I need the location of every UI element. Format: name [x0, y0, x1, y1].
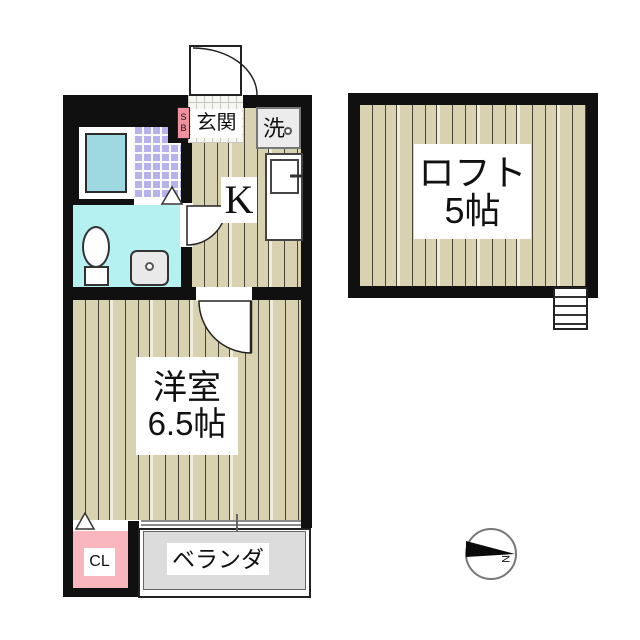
veranda-label-box: ベランダ — [167, 543, 269, 575]
kitchen-label: K — [225, 179, 254, 221]
entrance-door — [190, 46, 241, 95]
main-room-label-box: 洋室 6.5帖 — [136, 357, 238, 455]
compass-circle — [466, 529, 516, 579]
washer-door-icon — [284, 127, 292, 135]
shoe-box: SB — [177, 107, 190, 139]
entrance-door-arc — [193, 48, 257, 95]
closet-wall-bottom — [63, 588, 139, 597]
loft-name: ロフト — [418, 154, 526, 192]
closet-label: CL — [89, 554, 109, 571]
kitchen-label-box: K — [221, 177, 257, 223]
washer-label-box: 洗 — [261, 113, 287, 141]
wall-mid-left — [63, 287, 196, 300]
entrance-label-box: 玄関 — [191, 109, 242, 138]
loft-size: 5帖 — [444, 192, 500, 230]
washer-label: 洗 — [263, 111, 285, 143]
toilet-bowl — [82, 226, 110, 268]
entrance-label: 玄関 — [197, 113, 237, 134]
toilet-tank — [84, 266, 109, 286]
kitchen-sink — [270, 159, 299, 194]
floor-plan: 洗 N SB 玄 — [0, 0, 640, 640]
closet-threshold — [73, 520, 128, 531]
bathtub-inner — [85, 133, 127, 193]
closet-label-box: CL — [84, 548, 115, 576]
wall-mid-right — [252, 287, 312, 300]
wall-top-left — [63, 95, 188, 108]
wall-kitchen-bath-upper — [181, 138, 192, 204]
main-room-name: 洋室 — [153, 371, 221, 407]
room-doorway — [196, 287, 252, 301]
wall-left — [63, 95, 73, 597]
bath-threshold — [134, 197, 181, 205]
vanity-drain — [145, 262, 154, 271]
loft-label-box: ロフト 5帖 — [414, 144, 531, 239]
veranda-label: ベランダ — [172, 547, 264, 571]
compass-north-label: N — [499, 555, 511, 563]
shoe-box-label: SB — [180, 112, 187, 134]
compass-needle — [466, 541, 515, 557]
loft-ladder — [553, 287, 588, 330]
wall-kitchen-bath-lower — [181, 245, 192, 287]
main-room-size: 6.5帖 — [148, 407, 227, 442]
